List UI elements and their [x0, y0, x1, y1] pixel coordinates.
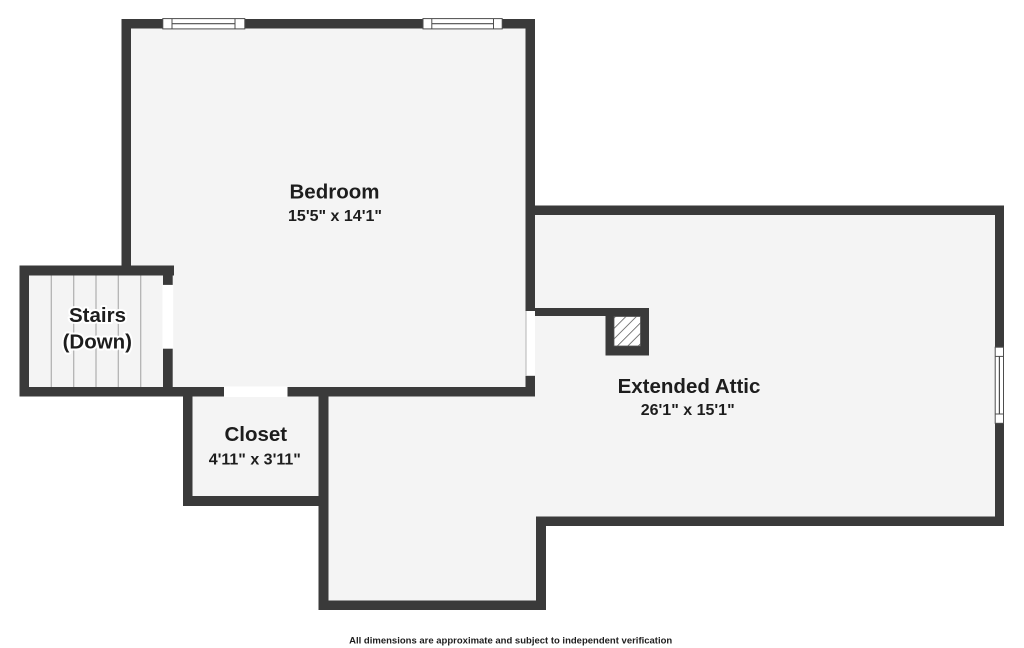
svg-text:All dimensions are approximate: All dimensions are approximate and subje…	[349, 636, 672, 647]
svg-text:4'11" x 3'11": 4'11" x 3'11"	[209, 451, 301, 468]
svg-text:15'5" x 14'1": 15'5" x 14'1"	[288, 208, 382, 225]
svg-text:Bedroom: Bedroom	[290, 181, 380, 204]
svg-text:(Down): (Down)	[63, 330, 132, 353]
svg-text:Stairs: Stairs	[69, 304, 126, 327]
svg-text:Extended Attic: Extended Attic	[618, 375, 761, 398]
svg-text:26'1" x 15'1": 26'1" x 15'1"	[641, 402, 735, 419]
svg-text:Closet: Closet	[224, 423, 287, 446]
